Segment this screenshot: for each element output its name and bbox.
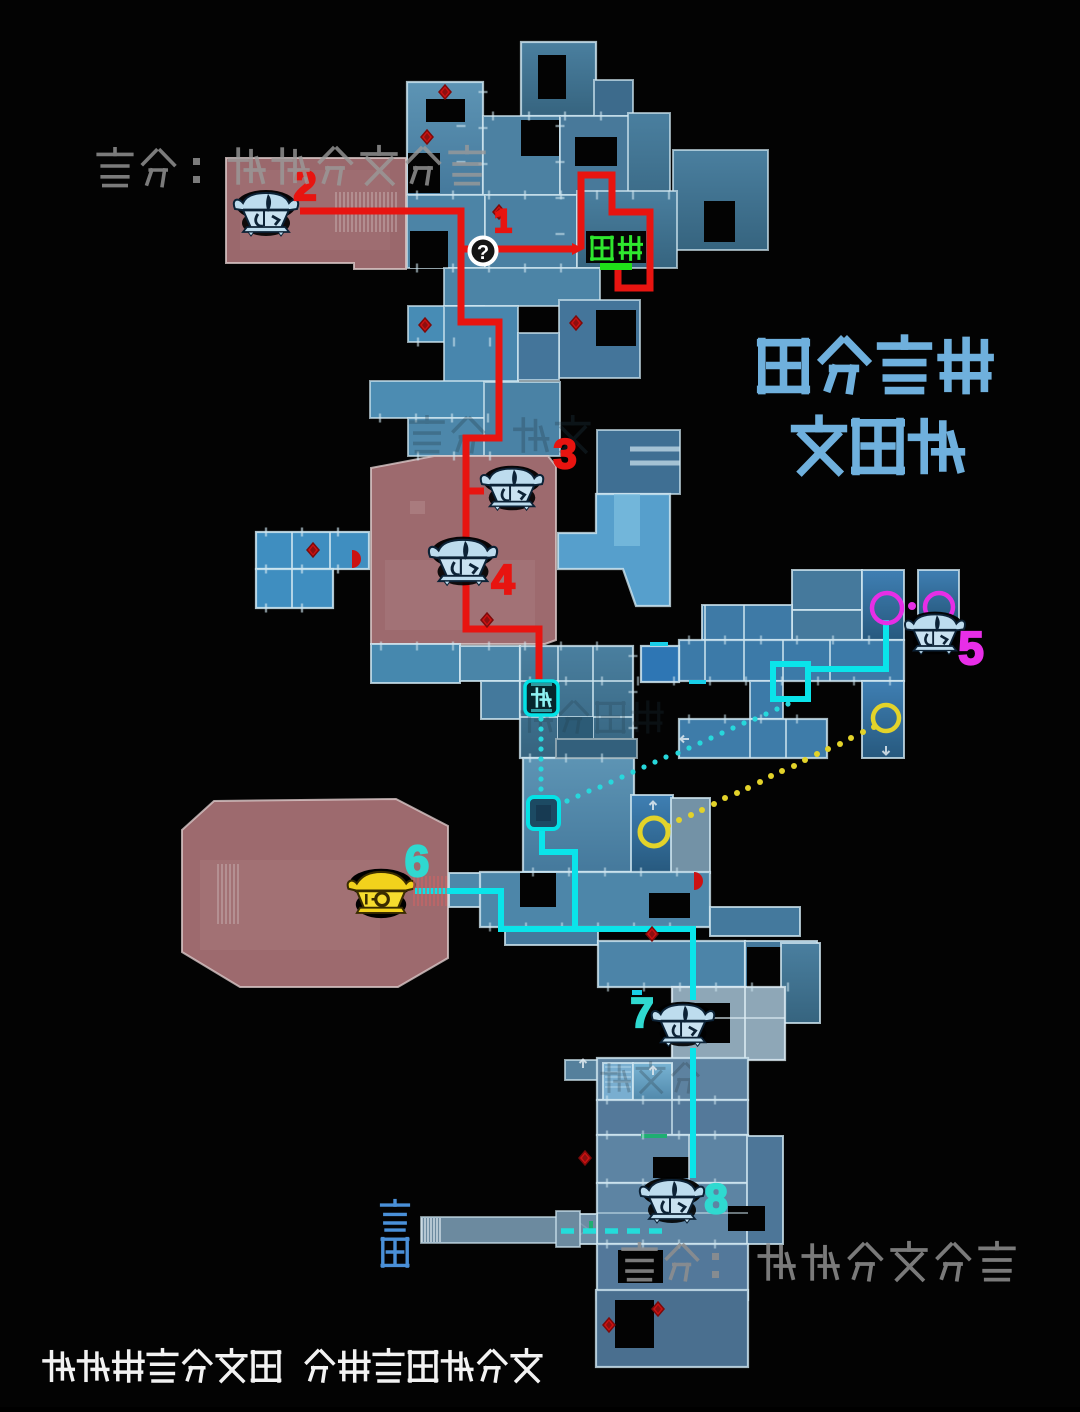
svg-text:6: 6: [405, 837, 429, 886]
svg-text:5: 5: [958, 622, 984, 674]
svg-text:8: 8: [704, 1175, 727, 1222]
svg-text:3: 3: [553, 430, 576, 477]
svg-text:?: ?: [477, 242, 489, 264]
svg-text:7: 7: [630, 989, 653, 1036]
svg-text:1: 1: [494, 203, 512, 239]
svg-text:4: 4: [491, 556, 515, 603]
